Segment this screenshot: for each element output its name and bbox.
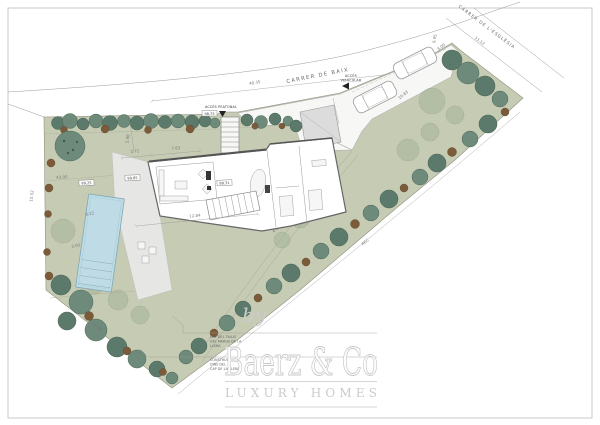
bed xyxy=(279,196,293,217)
level-value: 99.25 xyxy=(81,181,91,186)
dim-house-top-a: 2.72 xyxy=(130,148,140,154)
legend-line: CAP DEL TALUS xyxy=(210,335,236,339)
column xyxy=(207,186,211,190)
kitchen-block xyxy=(265,185,270,193)
level-house-west: 99.85 xyxy=(125,175,140,181)
dim-garden-west: 43.00 xyxy=(56,174,68,180)
bed xyxy=(308,190,322,211)
legend-line: LLERA xyxy=(210,344,221,348)
kitchen-counter xyxy=(312,160,326,167)
pedestrian-access-label: ACCÉS PEATONAL xyxy=(205,104,237,109)
level-value: 99.85 xyxy=(127,176,137,181)
site-plan: 40.35 CARRER DE BAIX CARRER DE L'ESGLÉSI… xyxy=(0,0,600,425)
level-value: 99.31 xyxy=(219,181,229,186)
dim-house-top-b: 7.63 xyxy=(171,145,181,151)
fireplace xyxy=(206,171,211,180)
vehicular-access-label-1: ACCÉS xyxy=(345,73,357,78)
watermark-by: by xyxy=(242,303,267,327)
watermark-brand: Baerz & Co xyxy=(224,340,378,384)
dim-house-south: 12.84 xyxy=(189,212,201,218)
level-house-east: 99.31 xyxy=(217,180,232,186)
vehicular-access-label-2: VEHICULAR xyxy=(341,79,362,83)
level-value: 98.75 xyxy=(204,112,214,116)
level-terrace: 99.25 xyxy=(79,180,94,186)
sofa-return xyxy=(160,196,188,201)
coffee-table xyxy=(175,181,187,189)
sofa xyxy=(159,170,164,196)
